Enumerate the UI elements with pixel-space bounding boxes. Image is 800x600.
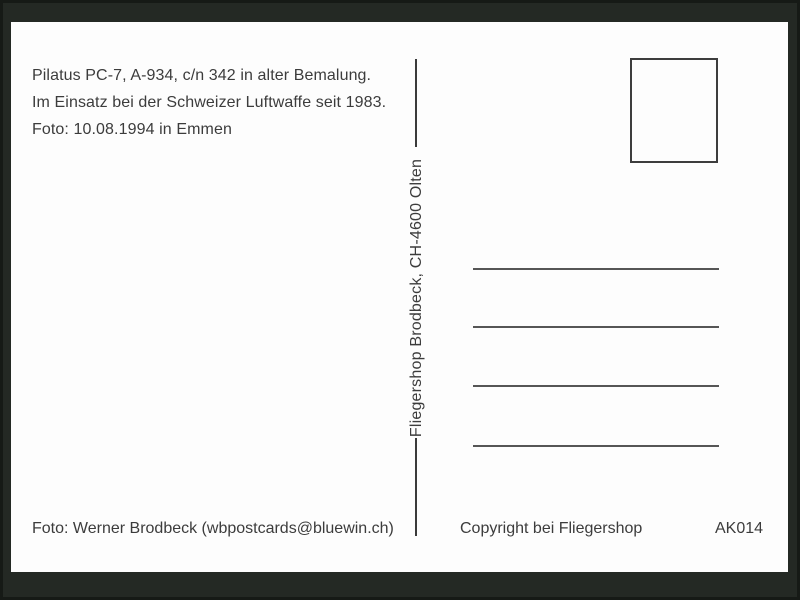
address-line (473, 385, 719, 387)
catalog-number: AK014 (715, 520, 763, 538)
address-line (473, 268, 719, 270)
address-line (473, 326, 719, 328)
copyright-notice: Copyright bei Fliegershop (460, 520, 642, 538)
caption-line-1: Pilatus PC-7, A-934, c/n 342 in alter Be… (32, 62, 386, 89)
photo-credit: Foto: Werner Brodbeck (wbpostcards@bluew… (32, 520, 394, 538)
center-divider-bottom (415, 438, 417, 536)
caption-block: Pilatus PC-7, A-934, c/n 342 in alter Be… (32, 62, 386, 143)
publisher-imprint-vertical: Fliegershop Brodbeck, CH-4600 Olten (408, 148, 428, 448)
scan-frame: Pilatus PC-7, A-934, c/n 342 in alter Be… (0, 0, 800, 600)
stamp-box (630, 58, 718, 163)
caption-line-2: Im Einsatz bei der Schweizer Luftwaffe s… (32, 89, 386, 116)
caption-line-3: Foto: 10.08.1994 in Emmen (32, 116, 386, 143)
center-divider-top (415, 59, 417, 147)
address-line (473, 445, 719, 447)
postcard-back: Pilatus PC-7, A-934, c/n 342 in alter Be… (11, 22, 788, 572)
